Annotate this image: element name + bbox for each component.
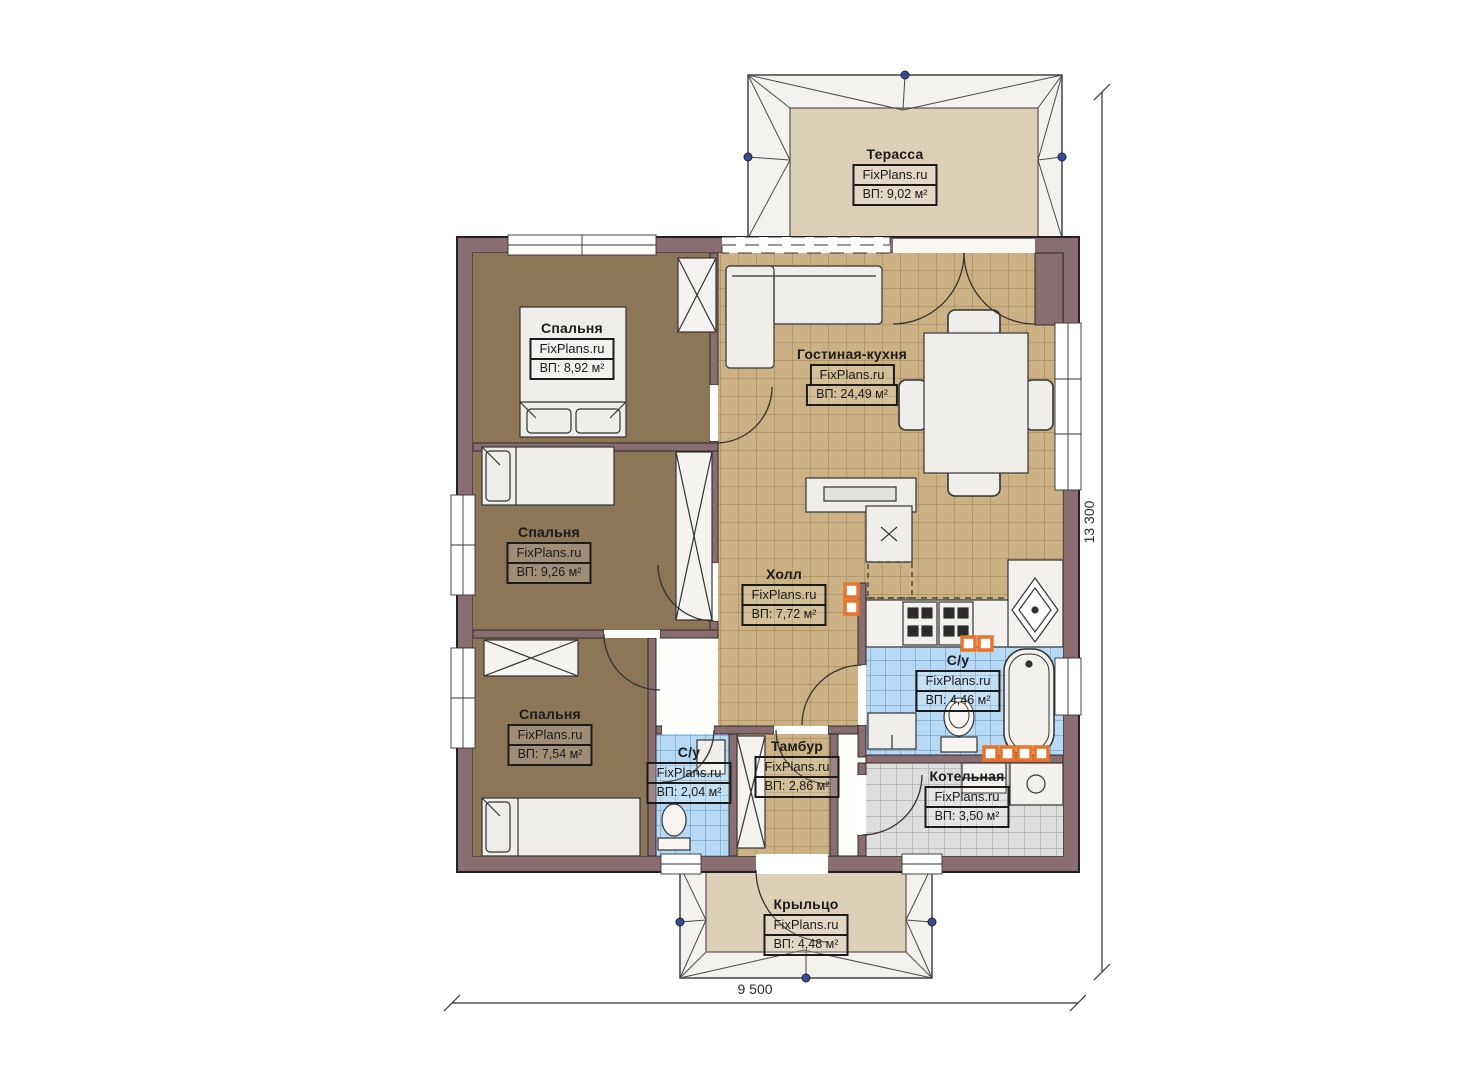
room-label-bathroom-small: С/у FixPlans.ru ВП: 2,04 м² — [646, 744, 731, 804]
window-living-top-band — [722, 237, 890, 253]
window-bedroom-1-top — [508, 235, 656, 255]
watermark: FixPlans.ru — [754, 756, 839, 778]
room-area: ВП: 2,86 м² — [755, 776, 840, 798]
watermark: FixPlans.ru — [741, 584, 826, 606]
bathroom-sink — [868, 713, 916, 749]
room-area: ВП: 9,26 м² — [507, 562, 592, 584]
wardrobe-bedroom-3 — [484, 640, 578, 676]
room-label-bedroom-2: Спальня FixPlans.ru ВП: 9,26 м² — [506, 524, 591, 584]
room-label-living-kitchen: Гостиная-кухня FixPlans.ru ВП: 24,49 м² — [797, 346, 907, 406]
room-area: ВП: 4,46 м² — [916, 690, 1001, 712]
room-label-bedroom-3: Спальня FixPlans.ru ВП: 7,54 м² — [507, 706, 592, 766]
window-bedroom-3-left — [451, 648, 475, 748]
room-area: ВП: 7,54 м² — [508, 744, 593, 766]
window-bottom-left — [661, 854, 701, 874]
room-label-bathroom-main: С/у FixPlans.ru ВП: 4,46 м² — [915, 652, 1000, 712]
dimension-width-label: 9 500 — [737, 981, 772, 997]
window-bathroom-right — [1055, 658, 1081, 715]
floor-plan-page: Терасса FixPlans.ru ВП: 9,02 м² Спальня … — [0, 0, 1473, 1080]
watermark: FixPlans.ru — [529, 338, 614, 360]
room-label-hall: Холл FixPlans.ru ВП: 7,72 м² — [741, 566, 826, 626]
window-living-right — [1055, 323, 1081, 490]
room-area: ВП: 9,02 м² — [853, 184, 938, 206]
window-bottom-right — [902, 854, 942, 874]
window-bedroom-2-left — [451, 495, 475, 595]
watermark: FixPlans.ru — [809, 364, 894, 386]
room-area: ВП: 3,50 м² — [925, 806, 1010, 828]
hall-floor — [718, 647, 858, 726]
fridge — [866, 506, 912, 562]
watermark: FixPlans.ru — [646, 762, 731, 784]
single-bed-middle — [482, 447, 614, 505]
watermark: FixPlans.ru — [763, 914, 848, 936]
room-area: ВП: 4,48 м² — [764, 934, 849, 956]
room-area: ВП: 24,49 м² — [806, 384, 898, 406]
room-area: ВП: 2,04 м² — [647, 782, 732, 804]
wardrobe-bedroom-1 — [678, 258, 716, 332]
watermark: FixPlans.ru — [506, 542, 591, 564]
room-area: ВП: 7,72 м² — [742, 604, 827, 626]
watermark: FixPlans.ru — [852, 164, 937, 186]
single-bed-bottom — [482, 798, 640, 856]
room-label-vestibule: Тамбур FixPlans.ru ВП: 2,86 м² — [754, 738, 839, 798]
floor-plan-drawing — [0, 0, 1473, 1080]
wardrobe-bedroom-2 — [676, 452, 712, 620]
watermark: FixPlans.ru — [924, 786, 1009, 808]
dimension-line-width — [444, 995, 1086, 1011]
room-label-porch: Крыльцо FixPlans.ru ВП: 4,48 м² — [763, 896, 848, 956]
bathtub — [1004, 649, 1054, 755]
watermark: FixPlans.ru — [915, 670, 1000, 692]
dimension-height-label: 13 300 — [1081, 501, 1097, 544]
room-label-bedroom-1: Спальня FixPlans.ru ВП: 8,92 м² — [529, 320, 614, 380]
room-area: ВП: 8,92 м² — [530, 358, 615, 380]
room-label-boiler-room: Котельная FixPlans.ru ВП: 3,50 м² — [924, 768, 1009, 828]
room-label-terrace: Терасса FixPlans.ru ВП: 9,02 м² — [852, 146, 937, 206]
watermark: FixPlans.ru — [507, 724, 592, 746]
